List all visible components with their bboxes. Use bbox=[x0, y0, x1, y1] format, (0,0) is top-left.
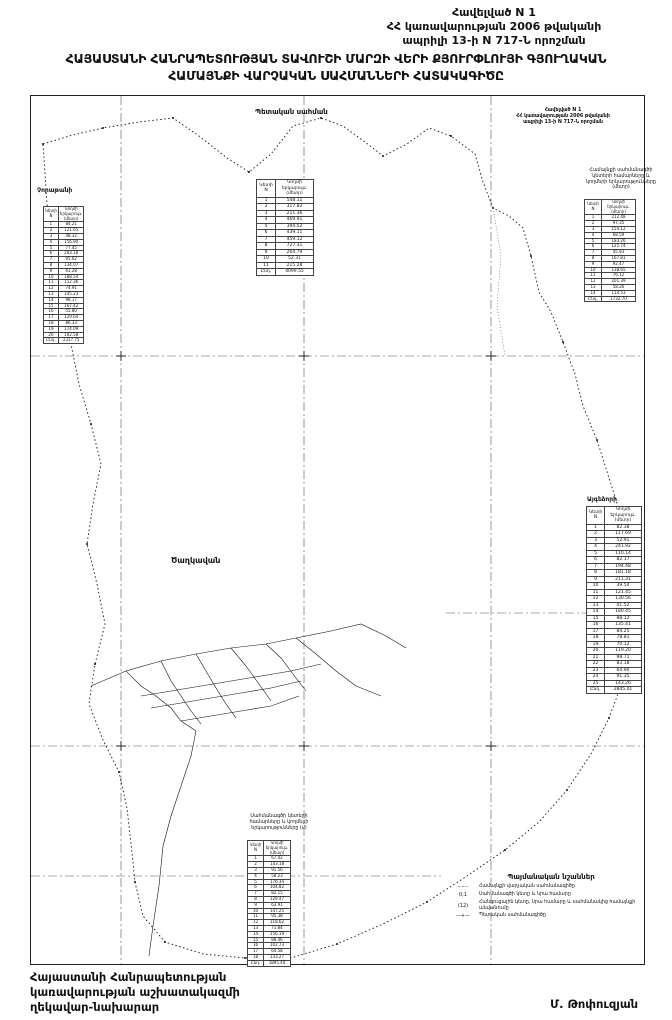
signatory-line: ղեկավար-նախարար bbox=[30, 1000, 240, 1015]
document-page: Հավելված N 1 ՀՀ կառավարության 2006 թվակա… bbox=[0, 0, 672, 1020]
corner-note: Հավելված N 1 ՀՀ կառավարության 2006 թվակա… bbox=[488, 108, 638, 125]
appendix-header: Հավելված N 1 ՀՀ կառավարության 2006 թվակա… bbox=[324, 6, 664, 48]
col-length-header: Կողմի երկարութ. (մետր) bbox=[58, 207, 84, 222]
legend-item: —+— Պետական սահմանագիծը bbox=[451, 913, 651, 919]
northeast-table-rows: 1212.48297.353154.12468.595183.266121.74… bbox=[585, 215, 636, 302]
col-length-header: Կողմի երկարութ. (մետր) bbox=[264, 841, 291, 856]
signatory-block: Հայաստանի Հանրապետության կառավարության ա… bbox=[30, 970, 240, 1015]
south-table-rows: 167.422143.18391.56458.235176.346104.827… bbox=[248, 856, 291, 966]
appendix-line: ապրիլի 13-ի N 717-Ն որոշման bbox=[324, 34, 664, 48]
west-table-rows: 184.212121.65348.324156.90577.456203.187… bbox=[44, 222, 84, 344]
title-line: ՀԱՄԱՅՆՔԻ ՎԱՐՉԱԿԱՆ ՍԱՀՄԱՆՆԵՐԻ ՀԱՏԱԿԱԳԻԾԸ bbox=[0, 67, 672, 84]
coordinate-grid bbox=[31, 96, 644, 964]
signature-name: Մ. Թոփուզյան bbox=[550, 997, 638, 1011]
legend-item-label: Սահմանագծի կետը և նրա համարը bbox=[479, 892, 571, 898]
south-boundary-table: Կետի N Կողմի երկարութ. (մետր) 167.422143… bbox=[247, 840, 291, 967]
state-border-icon: —+— bbox=[451, 913, 475, 919]
boundary-point-icon: 0;1 bbox=[451, 892, 475, 898]
legend-item: 0;1 Սահմանագծի կետը և նրա համարը bbox=[451, 892, 651, 898]
col-point-header: Կետի N bbox=[257, 180, 276, 198]
corner-note-line: ապրիլի 13-ի N 717-Ն որոշման bbox=[488, 120, 638, 126]
page-title: ՀԱՅԱՍՏԱՆԻ ՀԱՆՐԱՊԵՏՈՒԹՅԱՆ ՏԱՎՈՒՇԻ ՄԱՐԶԻ Վ… bbox=[0, 50, 672, 84]
south-table-caption: Սահմանագծի կետերի համարները և կողմերի եր… bbox=[236, 814, 322, 831]
legend-item-label: Հանգուցային կետը, նրա համարը և սահմանակի… bbox=[479, 900, 651, 911]
east-area-label: Այգեձորի bbox=[587, 496, 617, 503]
east-boundary-table: Կետի N Կողմի երկարութ. (մետր) 182.382117… bbox=[586, 506, 642, 694]
west-boundary-table: Կետի N Կողմի երկարութ. (մետր) 184.212121… bbox=[43, 206, 84, 344]
caption-line: (մետր) bbox=[571, 185, 671, 191]
legend-item: –·–·– Համայնքի վարչական սահմանագիծը bbox=[451, 884, 651, 890]
col-point-header: Կետի N bbox=[44, 207, 59, 222]
village-label: Ծաղկավան bbox=[171, 556, 220, 565]
legend: Պայմանական նշաններ –·–·– Համայնքի վարչակ… bbox=[451, 873, 651, 921]
boundary-point-markers bbox=[42, 117, 632, 959]
north-table-rows: 1548.112317.823211.364469.915394.526439.… bbox=[257, 197, 314, 275]
legend-item: (12) Հանգուցային կետը, նրա համարը և սահմ… bbox=[451, 900, 651, 911]
signatory-line: կառավարության աշխատակազմի bbox=[30, 985, 240, 1000]
legend-item-label: Պետական սահմանագիծը bbox=[479, 913, 546, 919]
map-canvas bbox=[31, 96, 644, 964]
north-boundary-table: Կետի N Կողմի երկարութ. (մետր) 1548.11231… bbox=[256, 179, 314, 276]
appendix-line: Հավելված N 1 bbox=[324, 6, 664, 20]
col-length-header: Կողմի երկարութ. (մետր) bbox=[276, 180, 314, 198]
col-length-header: Կողմի երկարութ. (մետր) bbox=[605, 507, 642, 525]
col-point-header: Կետի N bbox=[248, 841, 264, 856]
northeast-table-caption: Համայնքի սահմանագծի կետերի համարները և կ… bbox=[571, 168, 671, 191]
east-table-rows: 182.382117.69352.914241.925110.14682.177… bbox=[587, 524, 642, 693]
col-length-header: Կողմի երկարութ. (մետր) bbox=[602, 200, 636, 215]
map-frame: Հավելված N 1 ՀՀ կառավարության 2006 թվակա… bbox=[30, 95, 645, 965]
col-point-header: Կետի N bbox=[587, 507, 605, 525]
signatory-line: Հայաստանի Հանրապետության bbox=[30, 970, 240, 985]
col-point-header: Կետի N bbox=[585, 200, 602, 215]
west-area-label: Չորաթանի bbox=[37, 187, 72, 194]
community-boundary bbox=[43, 118, 633, 958]
appendix-line: ՀՀ կառավարության 2006 թվականի bbox=[324, 20, 664, 34]
title-line: ՀԱՅԱՍՏԱՆԻ ՀԱՆՐԱՊԵՏՈՒԹՅԱՆ ՏԱՎՈՒՇԻ ՄԱՐԶԻ Վ… bbox=[0, 50, 672, 67]
state-border-label: Պետական սահման bbox=[255, 108, 328, 116]
dashed-line-icon: –·–·– bbox=[451, 884, 475, 890]
legend-title: Պայմանական նշաններ bbox=[451, 873, 651, 881]
legend-item-label: Համայնքի վարչական սահմանագիծը bbox=[479, 884, 575, 890]
stream-line bbox=[493, 208, 505, 356]
caption-line: երկարությունները (մ) bbox=[236, 826, 322, 832]
northeast-boundary-table: Կետի N Կողմի երկարութ. (մետր) 1212.48297… bbox=[584, 199, 636, 302]
junction-point-icon: (12) bbox=[451, 903, 475, 909]
